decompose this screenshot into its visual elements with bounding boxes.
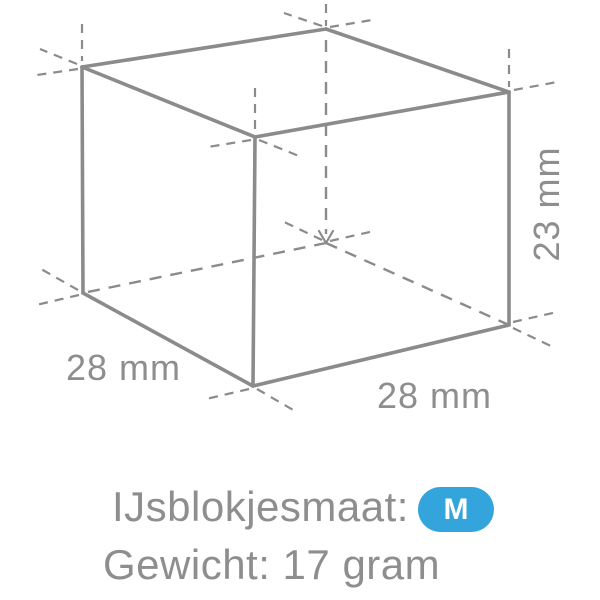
weight-label: Gewicht: 17 gram: [103, 541, 440, 589]
cube-hidden-edges: [83, 40, 509, 325]
dimension-width-label: 28 mm: [66, 350, 181, 386]
dimension-height-label: 23 mm: [529, 124, 567, 284]
ice-cube-size-label: IJsblokjesmaat:: [112, 483, 409, 531]
dimension-depth-label: 28 mm: [377, 378, 492, 414]
ice-cube-diagram: 28 mm 28 mm 23 mm IJsblokjesmaat: M Gewi…: [0, 0, 600, 600]
cube-solid-edges: [82, 29, 509, 386]
size-badge: M: [418, 487, 494, 532]
size-badge-value: M: [444, 495, 469, 525]
